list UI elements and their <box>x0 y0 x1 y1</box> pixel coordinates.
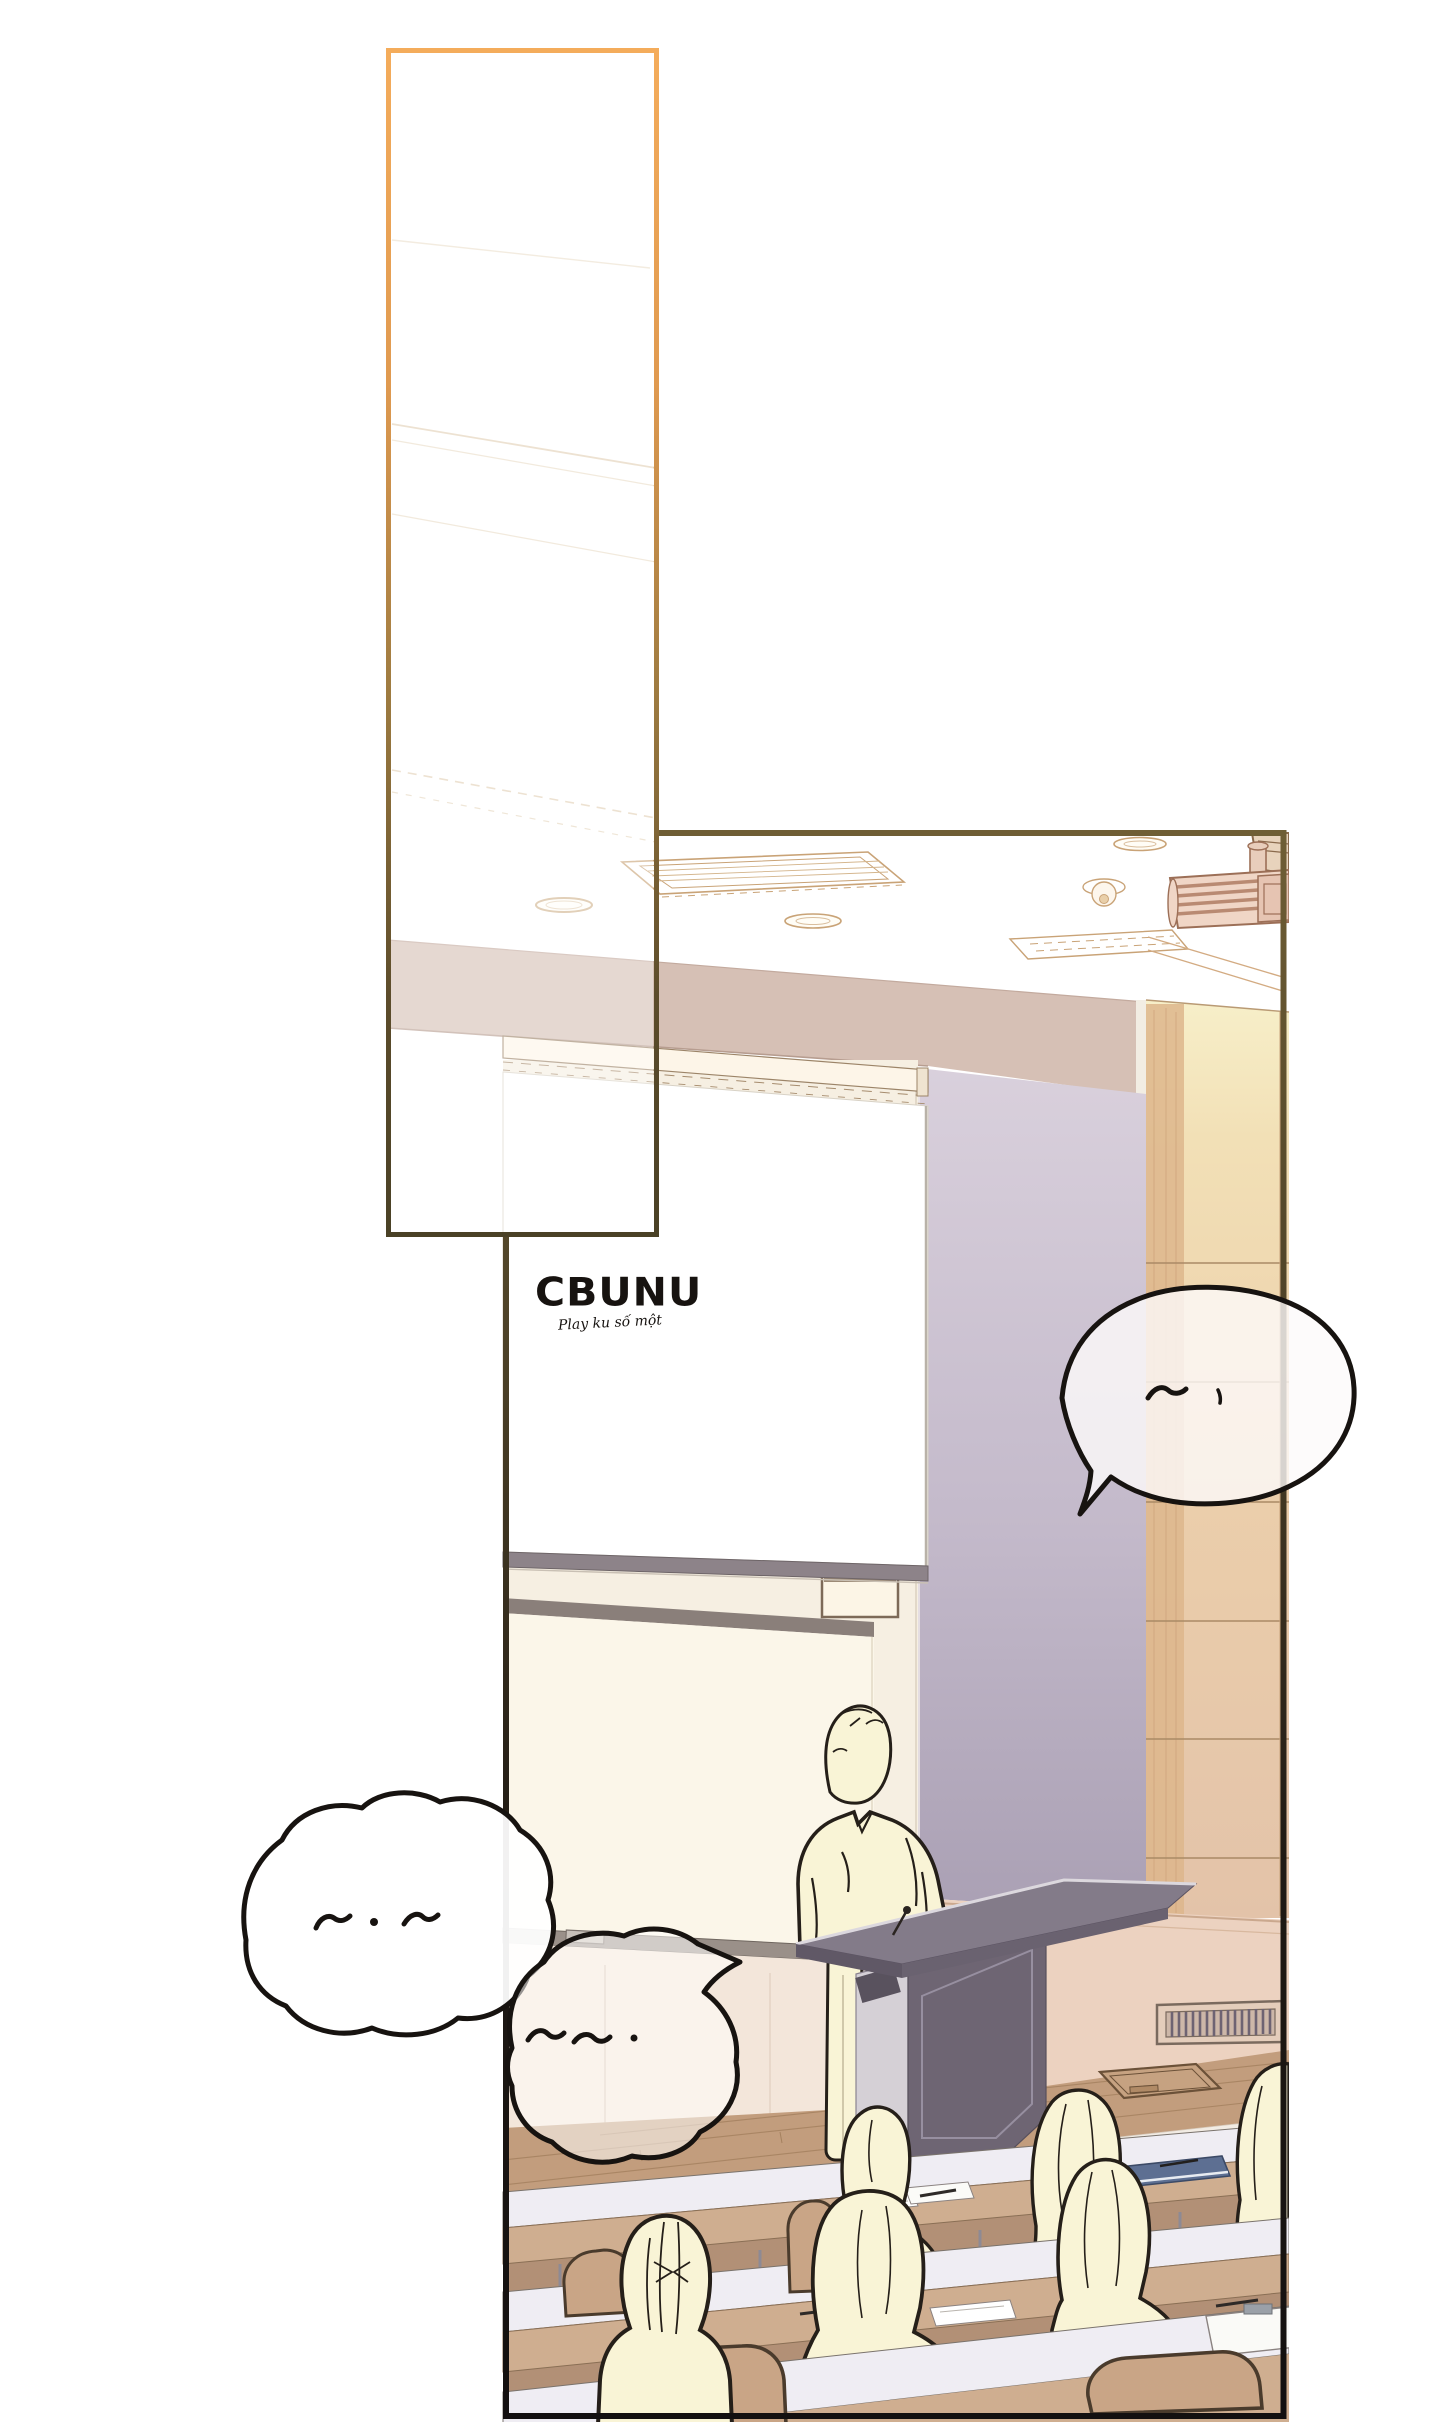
thought-bubble-upper-left <box>244 1793 554 2035</box>
speech-bubble-right <box>1062 1287 1354 1514</box>
comic-page: CBUNU Play ku số một <box>0 0 1440 2425</box>
wall-vent <box>1157 2001 1284 2044</box>
tall-panel-wash <box>391 53 653 1233</box>
logo: CBUNU Play ku số một <box>535 1272 685 1331</box>
lavender-wall <box>913 1068 1146 1912</box>
lecture-hall-scene <box>0 0 1440 2425</box>
thought-bubble-lower-left <box>508 1929 741 2162</box>
logo-title: CBUNU <box>535 1273 685 1312</box>
